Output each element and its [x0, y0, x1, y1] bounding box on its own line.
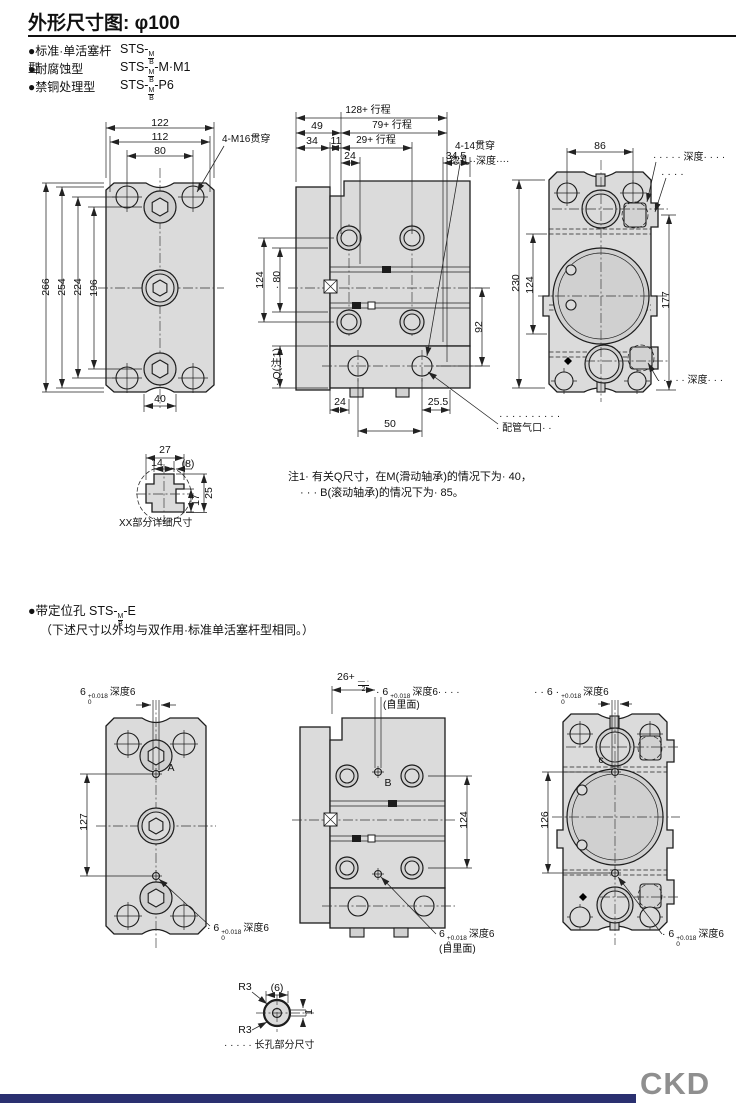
dim-124: 124 — [254, 271, 266, 289]
mark-a: A — [167, 762, 174, 774]
callout-depth-bottom: · · · · · 深度· · · — [657, 375, 723, 387]
port-dots: · · · · · · · · · · — [499, 410, 560, 422]
front-view-std — [42, 122, 224, 412]
tolerance-top-left: 6+0.0180深度6 — [80, 686, 135, 706]
callout-port: · 配管气口· · — [496, 423, 552, 435]
slot-caption: · · · · · 长孔部分尺寸 — [224, 1040, 315, 1052]
from-inside-label2: (自里面) — [439, 944, 476, 956]
dim-27: 27 — [159, 444, 171, 456]
dim-128-stroke: 128+ 行程 — [345, 105, 390, 117]
note-line2: · · · B(滚动轴承)的情况下为· 85。 — [300, 484, 464, 500]
callout-4-m16: 4-M16贯穿 — [222, 134, 270, 146]
dim-34: 34 — [306, 135, 318, 147]
side-view-e — [292, 686, 472, 937]
dim-8: (8) — [182, 458, 195, 470]
dim-25-5: 25.5 — [428, 396, 448, 408]
note-line1: 注1· 有关Q尺寸，在M(滑动轴承)的情况下为· 40， — [288, 468, 532, 484]
dim-224: 224 — [72, 278, 84, 296]
dim-254: 254 — [56, 278, 68, 296]
callout-4-14: 4-14贯穿 — [455, 141, 495, 153]
end-view-std — [512, 148, 676, 402]
footer-bar — [0, 1094, 636, 1103]
end-view-e — [542, 700, 680, 945]
dim-122: 122 — [151, 117, 169, 129]
tolerance-bottom-right: · 6+0.0180深度6 — [662, 928, 724, 948]
dim-6: (6) — [271, 982, 284, 994]
callout-counterbore: ·锪孔··深度···· — [446, 156, 509, 168]
dim-124b: 124 — [524, 276, 536, 294]
dim-40: 40 — [154, 393, 166, 405]
dim-1: 1 — [303, 1009, 315, 1015]
dim-24b: 24 — [334, 396, 346, 408]
callout-dots: · · · · — [661, 168, 684, 180]
xx-detail-caption: XX部分详细尺寸 — [119, 518, 192, 530]
callout-depth-top: · · · · · 深度· · · · — [653, 152, 725, 164]
dim-79-stroke: 79+ 行程 — [372, 120, 412, 132]
dim-q: · Q(注1) — [271, 348, 283, 386]
from-inside-label: (自里面) — [383, 700, 420, 712]
dim-14: 14 — [151, 457, 163, 469]
dim-24: 24 — [344, 150, 356, 162]
tolerance-top-right: · · 6 ·+0.0180深度6 — [534, 686, 609, 706]
dim-177: 177 — [660, 291, 672, 309]
dim-r3-top: R3 — [238, 981, 251, 993]
dim-25: 25 — [203, 487, 215, 499]
dim-80b: · 80 — [271, 271, 283, 289]
dim-196: 196 — [88, 279, 100, 297]
dim-r3-bottom: R3 — [238, 1024, 251, 1036]
dim-49: 49 — [311, 120, 323, 132]
dim-230: 230 — [510, 274, 522, 292]
dim-126: 126 — [539, 811, 551, 829]
mark-c: c — [598, 754, 603, 766]
dim-11: 11 — [331, 135, 342, 147]
dim-127: 127 — [78, 813, 90, 831]
catalog-page: 外形尺寸图: φ100 ●标准·单活塞杆型 STS-MB ●耐腐蚀型 STS-M… — [0, 0, 750, 1103]
dim-266: 266 — [40, 278, 52, 296]
dim-50: 50 — [384, 418, 396, 430]
xx-detail — [136, 454, 207, 524]
dimension-drawings — [0, 0, 750, 1103]
mark-b: B — [384, 777, 391, 789]
dim-29-stroke: 29+ 行程 — [356, 135, 396, 147]
dim-26-stroke: 26+— ·2 — [337, 671, 369, 693]
dim-112: 112 — [152, 131, 169, 143]
dim-92: 92 — [473, 321, 485, 333]
dim-124c: 124 — [458, 811, 470, 829]
dim-17: 17 — [190, 494, 202, 506]
dim-80: 80 — [154, 145, 166, 157]
section2-subtitle: （下述尺寸以外均与双作用·标准单活塞杆型相同。） — [40, 621, 314, 638]
tolerance-bottom-left: · 6+0.0180深度6 — [207, 922, 269, 942]
ckd-logo: CKD — [640, 1066, 710, 1102]
dim-86: 86 — [594, 140, 606, 152]
front-view-e — [80, 700, 216, 948]
